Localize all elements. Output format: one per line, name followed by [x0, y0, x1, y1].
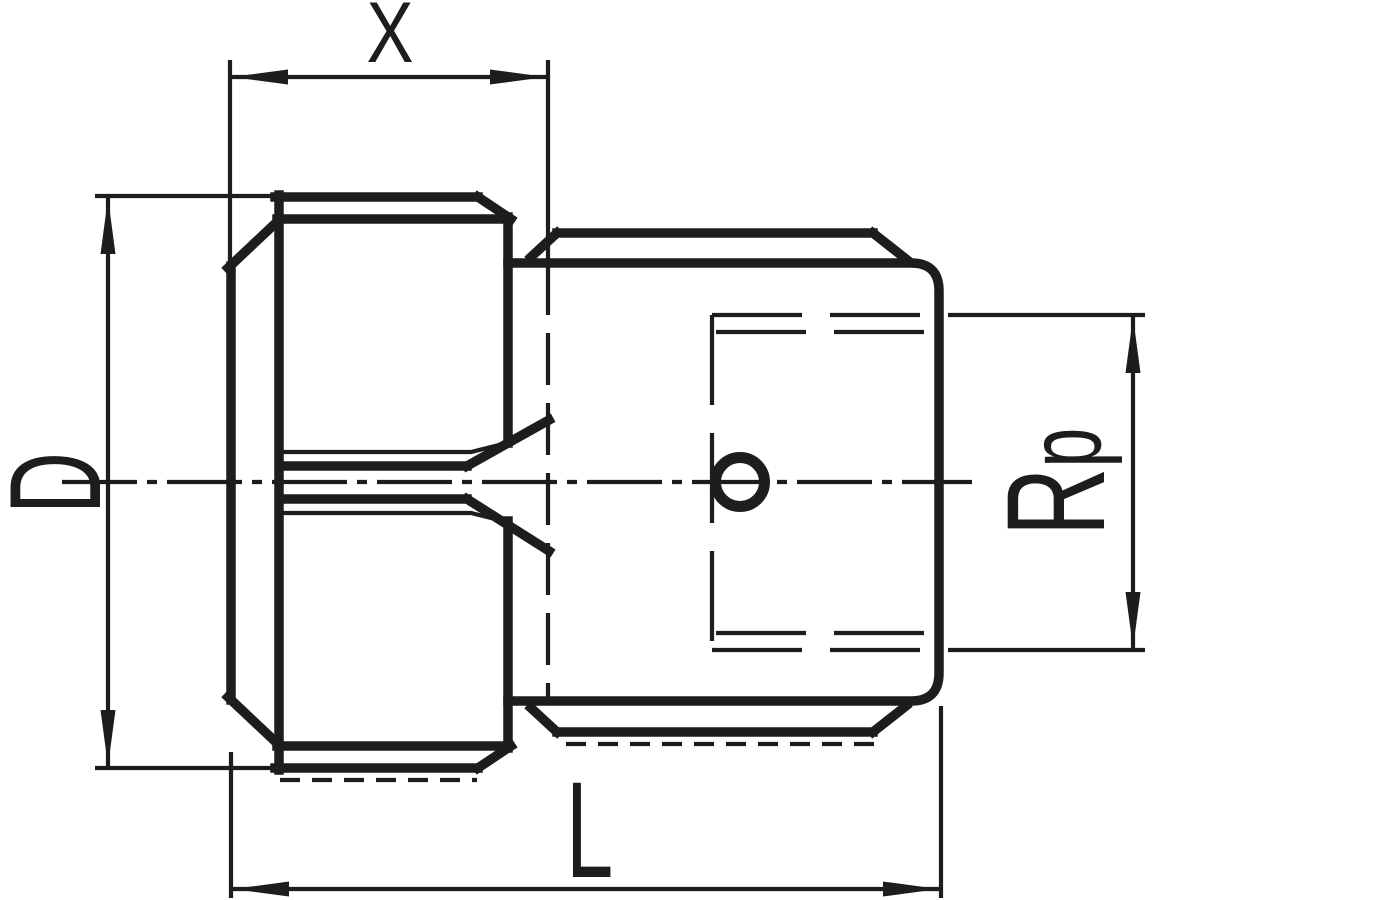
- dim-l-arrow-left: [233, 882, 289, 897]
- dim-d-arrow-down: [101, 710, 116, 766]
- dim-x-arrow-left: [232, 70, 288, 85]
- dim-d-label: D: [0, 452, 128, 514]
- drawing-canvas: X D L Rp: [0, 0, 1400, 900]
- dim-x-label: X: [366, 0, 413, 81]
- dim-rp-arrow-up: [1126, 317, 1141, 373]
- dim-rp-label-sub: p: [1006, 428, 1123, 468]
- dim-d-arrow-up: [101, 198, 116, 254]
- dim-x-arrow-right: [490, 70, 546, 85]
- dim-rp-label: Rp: [979, 428, 1135, 536]
- dim-rp-arrow-down: [1126, 592, 1141, 648]
- dim-l-label: L: [566, 754, 613, 900]
- technical-drawing: X D L Rp: [0, 0, 1400, 900]
- dim-rp-label-main: R: [979, 467, 1135, 536]
- dim-l-arrow-right: [883, 882, 939, 897]
